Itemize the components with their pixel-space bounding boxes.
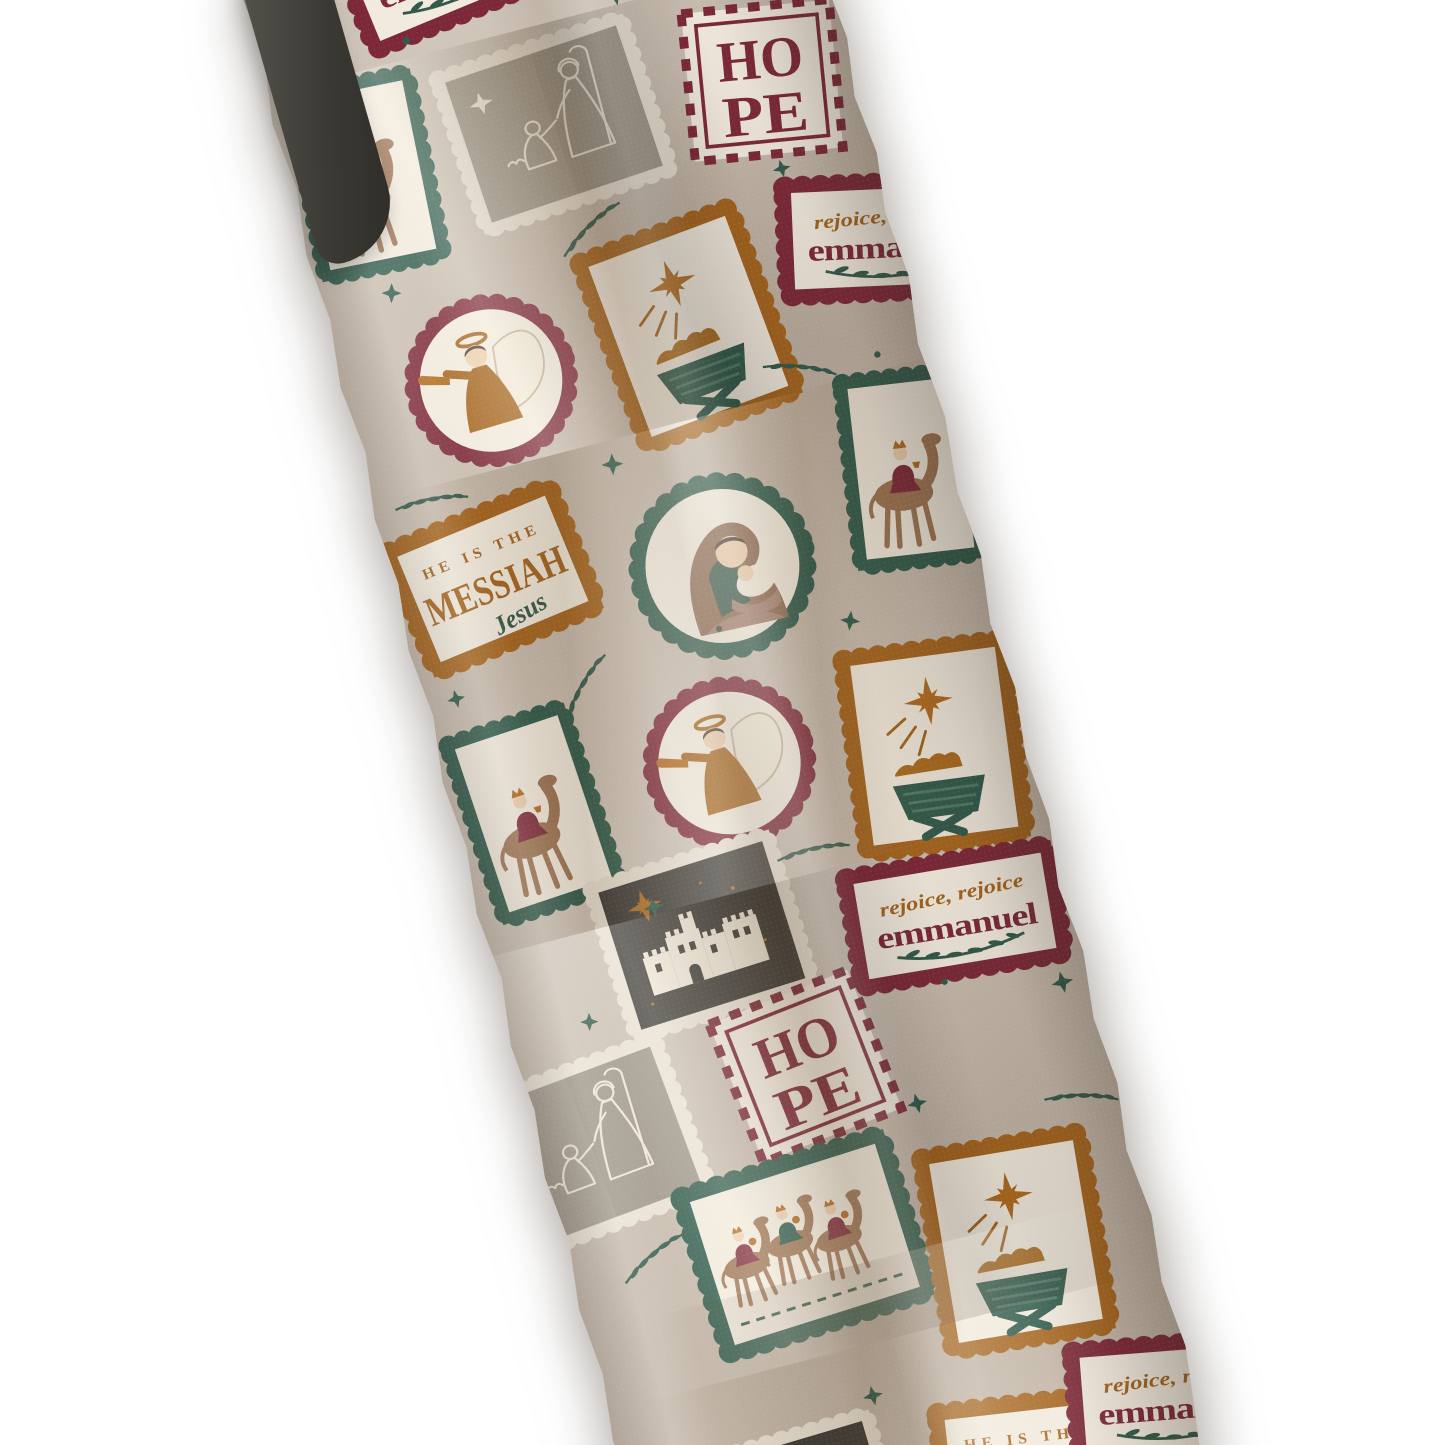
dot-icon (940, 977, 950, 987)
emmanuel-line2: emmanuel (807, 227, 971, 268)
branch-icon (542, 640, 627, 730)
fabric-swaddle: rejoice, rejoice emmanuel (0, 0, 1445, 1445)
stamp-mary-baby (603, 447, 842, 686)
stamp-hope: HO PE (669, 0, 855, 173)
hope-line2: PE (720, 79, 812, 150)
sparkle-icon (1048, 968, 1077, 997)
sparkle-icon (502, 1114, 533, 1144)
stamp-star-manger (909, 1121, 1122, 1363)
branch-icon (1037, 1072, 1126, 1121)
stamp-emmanuel: rejoice, rejoice emmanuel (773, 167, 1003, 307)
stamp-bethlehem (677, 1401, 923, 1445)
stamp-emmanuel: rejoice, rejoice emmanuel (1061, 1325, 1296, 1445)
sparkle-icon (380, 282, 402, 304)
sparkle-icon (444, 687, 468, 711)
sparkle-icon (838, 609, 862, 633)
stamp-angel (376, 266, 606, 496)
photo-canvas: rejoice, rejoice emmanuel (0, 0, 1445, 1445)
sparkle-icon (600, 451, 626, 477)
sparkle-icon (860, 1382, 887, 1409)
sparkle-icon (904, 1090, 931, 1117)
branch-icon (390, 482, 474, 519)
dot-icon (873, 350, 883, 360)
stamp-camel (830, 358, 992, 578)
branch-icon (771, 830, 856, 870)
stamp-shepherds (423, 5, 684, 244)
sparkle-icon (579, 1011, 600, 1032)
stamp-star-manger (831, 628, 1038, 865)
